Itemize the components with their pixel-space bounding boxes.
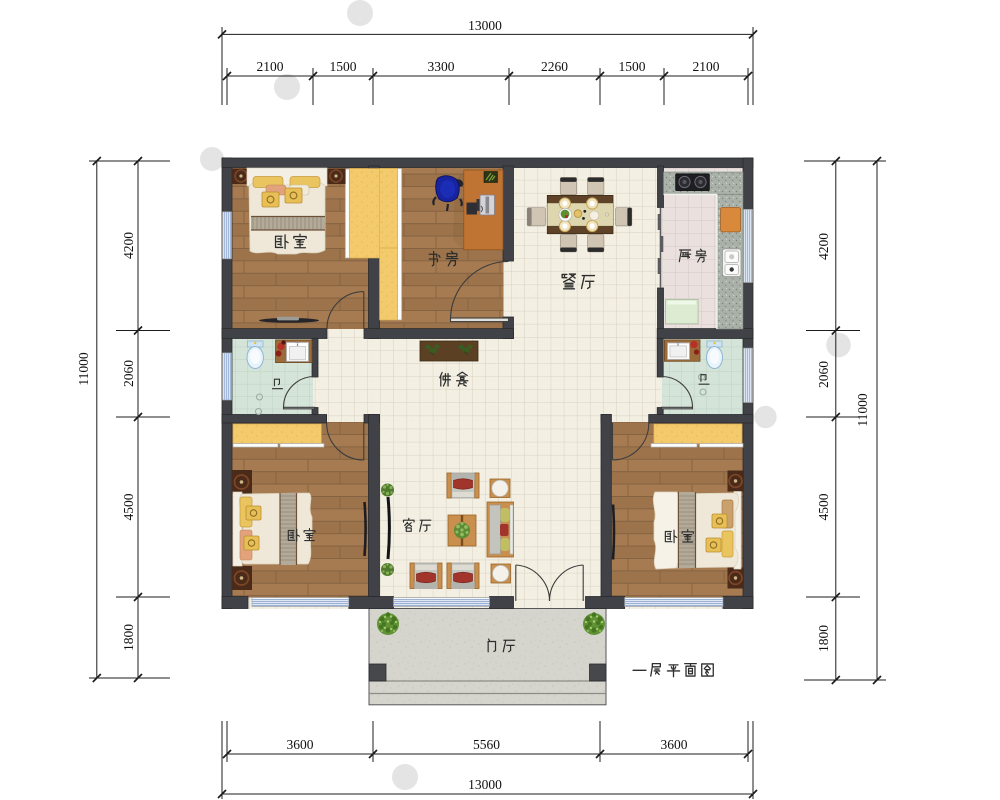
svg-text:13000: 13000 xyxy=(468,18,502,33)
svg-text:1800: 1800 xyxy=(816,625,831,652)
svg-text:5560: 5560 xyxy=(473,737,500,752)
svg-text:4500: 4500 xyxy=(121,493,136,520)
svg-text:3600: 3600 xyxy=(287,737,314,752)
svg-text:2260: 2260 xyxy=(541,59,568,74)
svg-text:11000: 11000 xyxy=(76,352,91,385)
svg-text:1500: 1500 xyxy=(330,59,357,74)
svg-text:1800: 1800 xyxy=(121,624,136,651)
svg-text:11000: 11000 xyxy=(855,393,870,426)
svg-text:2100: 2100 xyxy=(257,59,284,74)
svg-text:2100: 2100 xyxy=(693,59,720,74)
svg-text:2060: 2060 xyxy=(121,360,136,387)
svg-text:3300: 3300 xyxy=(428,59,455,74)
svg-text:2060: 2060 xyxy=(816,361,831,388)
svg-text:4200: 4200 xyxy=(121,232,136,259)
svg-text:3600: 3600 xyxy=(661,737,688,752)
svg-text:13000: 13000 xyxy=(468,777,502,792)
svg-text:4200: 4200 xyxy=(816,233,831,260)
svg-text:4500: 4500 xyxy=(816,493,831,520)
svg-text:1500: 1500 xyxy=(619,59,646,74)
